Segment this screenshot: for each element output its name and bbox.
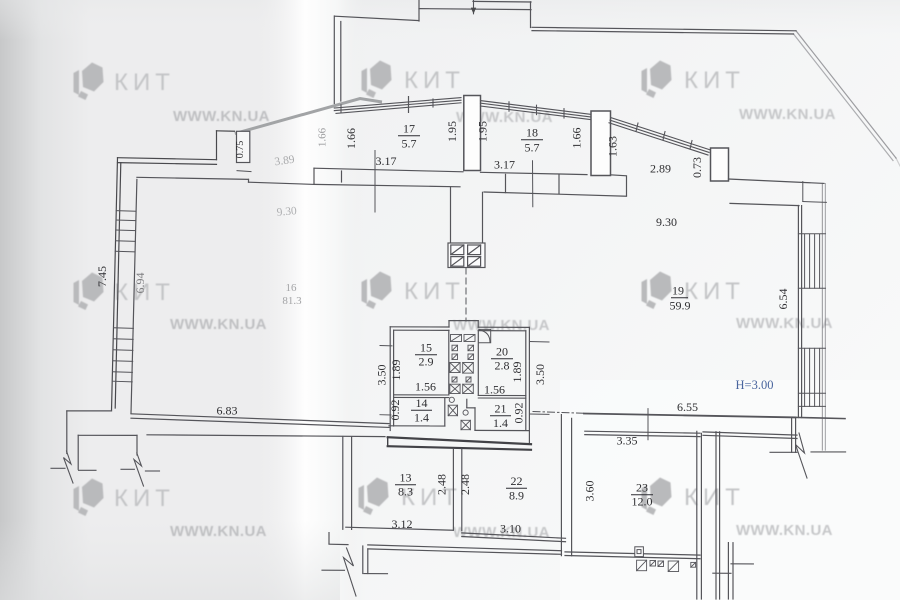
svg-text:8.9: 8.9 xyxy=(509,489,524,503)
svg-text:0.92: 0.92 xyxy=(512,403,526,424)
svg-text:1.66: 1.66 xyxy=(344,128,358,149)
svg-text:Н=3.00: Н=3.00 xyxy=(736,378,774,392)
svg-text:WWW.KN.UA: WWW.KN.UA xyxy=(736,522,833,539)
svg-text:КИТ: КИТ xyxy=(114,485,175,512)
svg-text:1.89: 1.89 xyxy=(510,362,524,383)
svg-text:18: 18 xyxy=(526,126,538,140)
svg-text:12.0: 12.0 xyxy=(632,495,653,509)
svg-text:5.7: 5.7 xyxy=(525,141,540,155)
svg-text:3.60: 3.60 xyxy=(583,481,597,502)
svg-text:7.45: 7.45 xyxy=(95,266,109,287)
svg-text:23: 23 xyxy=(636,481,648,495)
svg-text:59.9: 59.9 xyxy=(670,299,691,313)
svg-text:0.73: 0.73 xyxy=(690,157,704,178)
svg-text:2.8: 2.8 xyxy=(495,359,510,373)
svg-text:WWW.KN.UA: WWW.KN.UA xyxy=(736,315,833,332)
svg-text:21: 21 xyxy=(495,402,507,416)
svg-text:WWW.KN.UA: WWW.KN.UA xyxy=(453,317,550,334)
svg-text:19: 19 xyxy=(672,284,684,298)
svg-text:1.56: 1.56 xyxy=(415,380,436,394)
svg-text:WWW.KN.UA: WWW.KN.UA xyxy=(173,108,270,125)
svg-text:6.54: 6.54 xyxy=(776,289,790,310)
svg-text:КИТ: КИТ xyxy=(684,278,745,305)
svg-text:16: 16 xyxy=(286,282,298,294)
svg-text:5.7: 5.7 xyxy=(402,137,417,151)
svg-text:1.95: 1.95 xyxy=(476,121,490,142)
svg-text:13: 13 xyxy=(400,471,412,485)
svg-text:WWW.KN.UA: WWW.KN.UA xyxy=(170,523,267,540)
svg-text:КИТ: КИТ xyxy=(684,484,745,511)
svg-text:17: 17 xyxy=(403,122,415,136)
svg-text:2.9: 2.9 xyxy=(419,355,434,369)
svg-text:1.56: 1.56 xyxy=(484,383,505,397)
svg-text:81.3: 81.3 xyxy=(282,295,302,307)
svg-text:0.75: 0.75 xyxy=(235,141,246,159)
svg-text:2.48: 2.48 xyxy=(435,474,449,495)
svg-text:1.63: 1.63 xyxy=(606,136,620,157)
svg-text:2.48: 2.48 xyxy=(458,474,472,495)
svg-text:2.89: 2.89 xyxy=(650,162,671,176)
svg-text:1.95: 1.95 xyxy=(445,121,459,142)
svg-text:22: 22 xyxy=(511,474,523,488)
svg-text:3.35: 3.35 xyxy=(617,434,638,448)
svg-text:14: 14 xyxy=(416,396,428,410)
svg-text:WWW.KN.UA: WWW.KN.UA xyxy=(170,316,267,333)
svg-text:1.66: 1.66 xyxy=(317,127,329,147)
svg-text:3.12: 3.12 xyxy=(392,517,413,531)
svg-text:КИТ: КИТ xyxy=(404,278,465,305)
svg-text:1.66: 1.66 xyxy=(570,128,584,149)
svg-text:9.30: 9.30 xyxy=(276,205,297,219)
svg-text:КИТ: КИТ xyxy=(404,67,465,94)
svg-text:6.94: 6.94 xyxy=(133,273,147,294)
svg-text:3.50: 3.50 xyxy=(375,365,389,386)
svg-text:1.4: 1.4 xyxy=(493,416,508,430)
svg-text:WWW.KN.UA: WWW.KN.UA xyxy=(739,106,836,123)
svg-text:6.83: 6.83 xyxy=(217,404,238,418)
svg-text:20: 20 xyxy=(496,345,508,359)
svg-text:1.4: 1.4 xyxy=(414,411,429,425)
svg-text:КИТ: КИТ xyxy=(684,67,745,94)
svg-text:8.3: 8.3 xyxy=(398,485,413,499)
svg-text:3.17: 3.17 xyxy=(494,158,515,172)
svg-text:3.50: 3.50 xyxy=(533,364,547,385)
svg-text:3.10: 3.10 xyxy=(500,522,521,536)
svg-text:1.89: 1.89 xyxy=(389,360,403,381)
svg-text:КИТ: КИТ xyxy=(114,69,175,96)
svg-text:15: 15 xyxy=(420,341,432,355)
svg-text:0.92: 0.92 xyxy=(388,400,402,421)
svg-text:3.17: 3.17 xyxy=(376,154,397,168)
svg-text:9.30: 9.30 xyxy=(656,215,677,229)
svg-text:6.55: 6.55 xyxy=(677,400,698,414)
